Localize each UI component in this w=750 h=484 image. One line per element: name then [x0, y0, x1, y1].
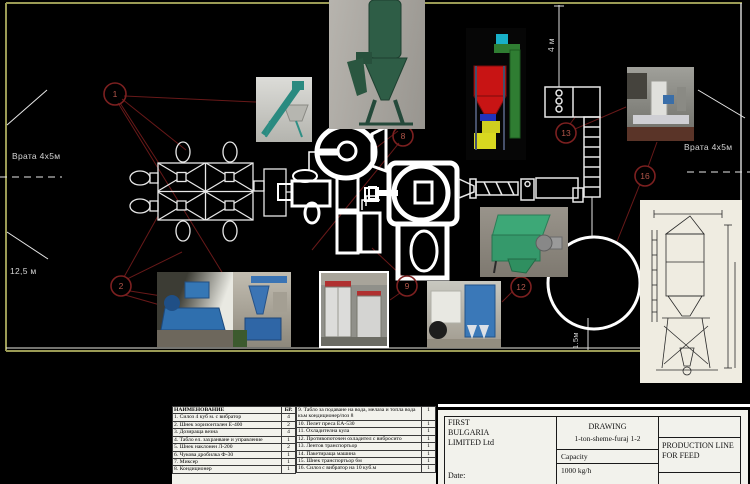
date-label: Date: — [448, 471, 465, 480]
titleblock-top-rule — [438, 404, 750, 407]
floor-plan-canvas: 1 2 8 9 12 13 16 — [0, 0, 750, 484]
table-row: 4. Табло ел. захранване и управление1 — [173, 436, 296, 443]
table-row: 3. Дозираща везна4 — [173, 429, 296, 436]
table-row: 5. Шнек наклонен Л-2002 — [173, 444, 296, 451]
drawing-cyclone-detail — [640, 200, 742, 383]
capacity-label: Capacity — [561, 452, 588, 461]
drawing-label: DRAWING — [557, 422, 658, 431]
table-row: 7. Миксер1 — [173, 458, 296, 465]
photo-machinery-yard — [627, 67, 694, 141]
gate-right-label: Врата 4х5м — [684, 142, 732, 152]
table-row: 2. Шнек хоризонтален Е-4002 — [173, 421, 296, 428]
table-row: 8. Кондиционер1 — [173, 466, 296, 473]
table-row: 1. Силоз 4 куб м. с вибратор4 — [173, 414, 296, 421]
table-row: 16. Силоз с вибратор на 10 куб.м1 — [297, 465, 436, 472]
table-row: 9. Табло за подаване на вода, мелаза и т… — [297, 407, 436, 421]
callout-2: 2 — [119, 281, 124, 291]
equipment-header-qty: БР. — [282, 407, 296, 414]
callout-12: 12 — [516, 282, 526, 292]
callout-1: 1 — [113, 89, 118, 99]
photo-3d-render — [466, 28, 526, 160]
callout-8: 8 — [401, 131, 406, 141]
photo-counterflow-cooler — [480, 207, 568, 277]
table-row: 10. Пелет преса ЕА-5301 — [297, 420, 436, 427]
table-row: 15. Шнек транспортьор 6м1 — [297, 457, 436, 464]
callout-13: 13 — [561, 128, 571, 138]
product-line-title: PRODUCTION LINE FOR FEED — [662, 441, 740, 462]
table-row: 11. Охладителна кула1 — [297, 428, 436, 435]
photo-roller-mill — [157, 272, 233, 347]
gate-left-label: Врата 4х5м — [12, 151, 60, 161]
callout-16: 16 — [640, 171, 650, 181]
photo-screw-conveyor — [256, 77, 312, 142]
table-row: 13. Лентов транспортьор1 — [297, 443, 436, 450]
dim-1-5m-label: 1.5м — [571, 332, 580, 349]
drawing-name: 1-ton-sheme-furaj 1-2 — [557, 434, 658, 443]
photo-vertical-mixer — [329, 0, 425, 129]
company-name: FIRST BULGARIA LIMITED Ltd — [448, 418, 494, 448]
title-block: FIRST BULGARIA LIMITED Ltd Date: DRAWING… — [438, 410, 748, 484]
callout-9: 9 — [405, 281, 410, 291]
table-row: 12. Противопоточен охладител с вибросито… — [297, 435, 436, 442]
hall-width-label: 12,5 м — [10, 266, 37, 276]
hammer-mill-symbol — [316, 126, 386, 178]
cooler-symbol — [398, 224, 447, 278]
capacity-value: 1000 kg/h — [561, 466, 591, 475]
table-row: 14. Пакетираща машина1 — [297, 450, 436, 457]
pellet-press-symbol — [369, 163, 457, 224]
conveyor-boxes-symbol — [337, 177, 380, 253]
equipment-header-name: НАИМЕНОВАНИЕ — [173, 407, 282, 414]
packing-line-symbol — [459, 178, 583, 202]
dim-4m-label: 4 м — [546, 38, 556, 52]
equipment-table-right: 9. Табло за подаване на вода, мелаза и т… — [296, 406, 436, 484]
gate-left-symbol — [0, 90, 62, 259]
photo-packing-machine — [427, 281, 501, 348]
photo-cyclone-mill — [233, 272, 291, 347]
table-row: 6. Чукова дробилка Ф-301 — [173, 451, 296, 458]
equipment-table-left: НАИМЕНОВАНИЕ БР. 1. Силоз 4 куб м. с виб… — [172, 406, 296, 484]
photo-control-panels — [319, 271, 389, 348]
